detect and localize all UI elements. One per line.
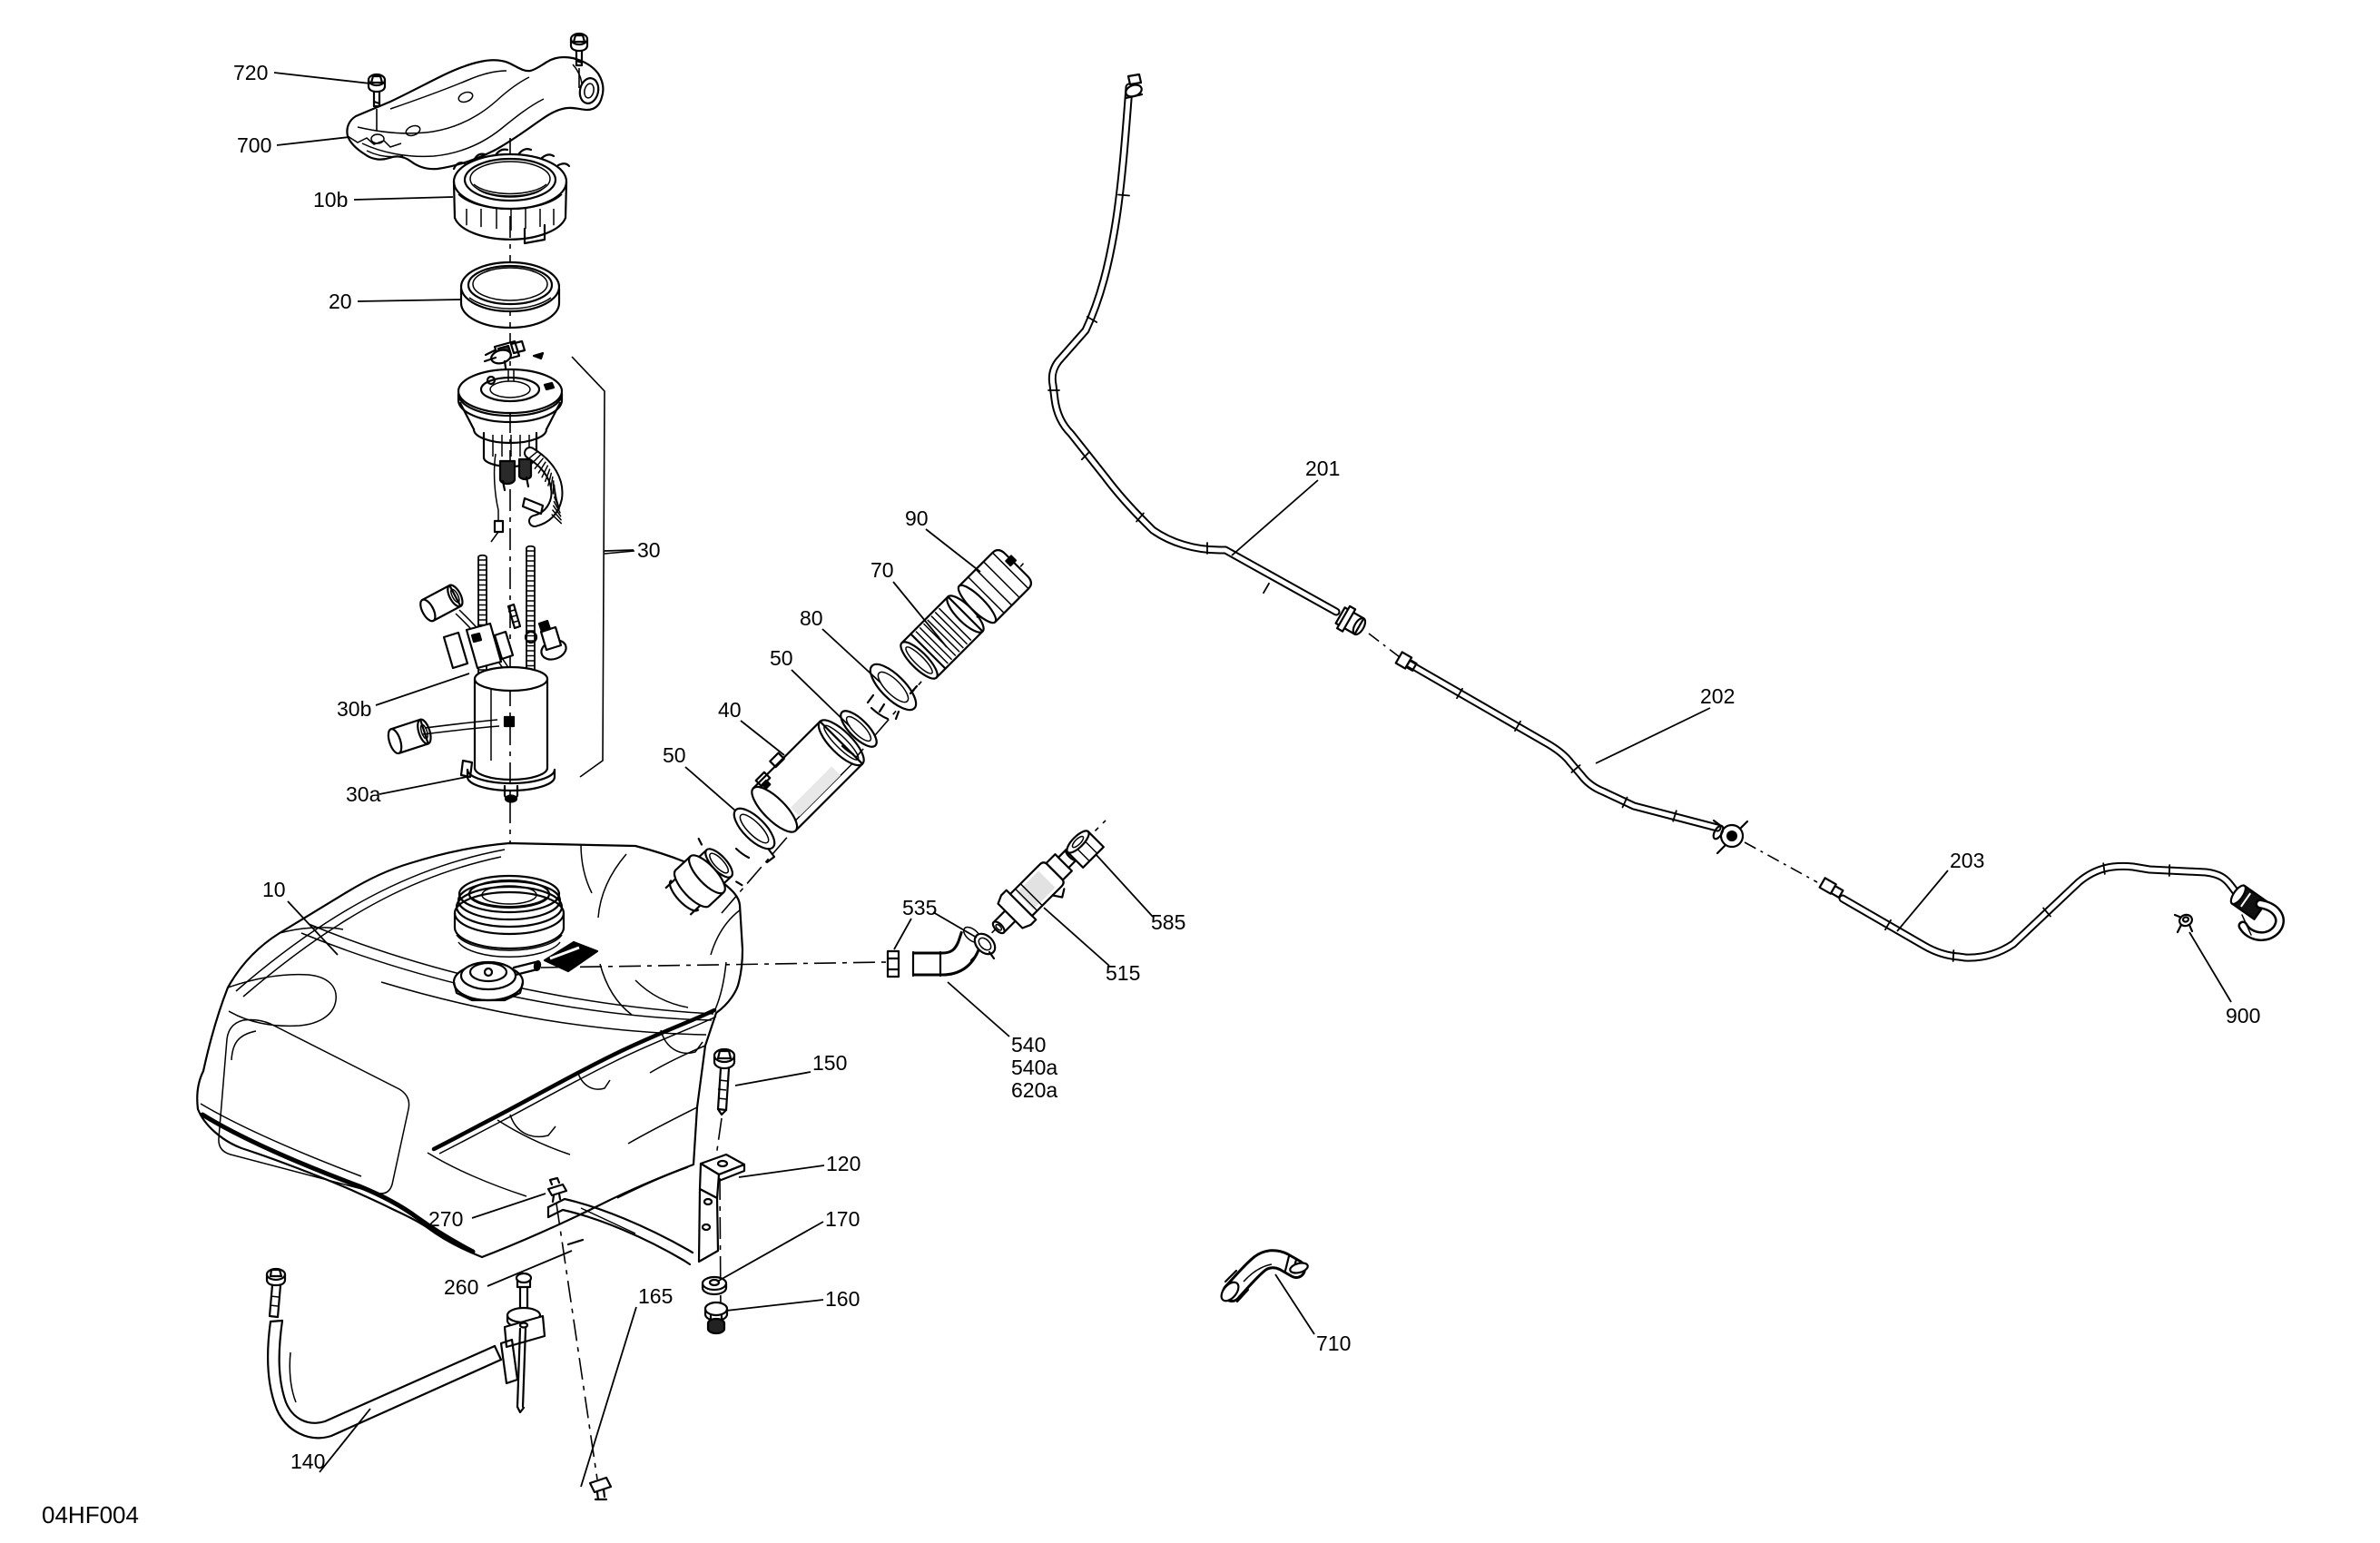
svg-text:720: 720 xyxy=(233,61,268,84)
svg-text:04HF004: 04HF004 xyxy=(42,1501,139,1528)
svg-text:140: 140 xyxy=(290,1450,325,1473)
svg-text:50: 50 xyxy=(770,646,793,670)
svg-text:270: 270 xyxy=(428,1207,463,1231)
svg-text:20: 20 xyxy=(329,290,352,313)
svg-text:260: 260 xyxy=(444,1275,478,1299)
svg-text:700: 700 xyxy=(237,133,271,157)
svg-text:201: 201 xyxy=(1305,457,1340,480)
svg-text:515: 515 xyxy=(1106,961,1140,985)
svg-text:540a: 540a xyxy=(1011,1056,1057,1079)
svg-text:10: 10 xyxy=(262,878,286,901)
svg-text:540: 540 xyxy=(1011,1033,1046,1057)
svg-text:535: 535 xyxy=(902,896,937,919)
svg-text:160: 160 xyxy=(825,1287,860,1311)
svg-text:203: 203 xyxy=(1950,849,1984,872)
svg-text:80: 80 xyxy=(800,606,823,630)
svg-text:90: 90 xyxy=(905,506,929,530)
svg-text:50: 50 xyxy=(663,743,686,767)
svg-text:10b: 10b xyxy=(313,188,348,211)
svg-text:40: 40 xyxy=(718,698,742,722)
svg-text:620a: 620a xyxy=(1011,1078,1057,1102)
svg-text:585: 585 xyxy=(1151,910,1185,934)
svg-text:900: 900 xyxy=(2226,1004,2260,1027)
svg-text:30b: 30b xyxy=(337,697,371,721)
svg-text:30: 30 xyxy=(637,538,661,562)
svg-text:70: 70 xyxy=(870,558,894,582)
svg-text:120: 120 xyxy=(826,1152,861,1175)
svg-text:30a: 30a xyxy=(346,782,381,806)
svg-text:202: 202 xyxy=(1700,684,1735,708)
svg-text:150: 150 xyxy=(812,1051,847,1075)
svg-text:710: 710 xyxy=(1316,1332,1351,1355)
svg-text:170: 170 xyxy=(825,1207,860,1231)
svg-text:165: 165 xyxy=(638,1284,673,1308)
